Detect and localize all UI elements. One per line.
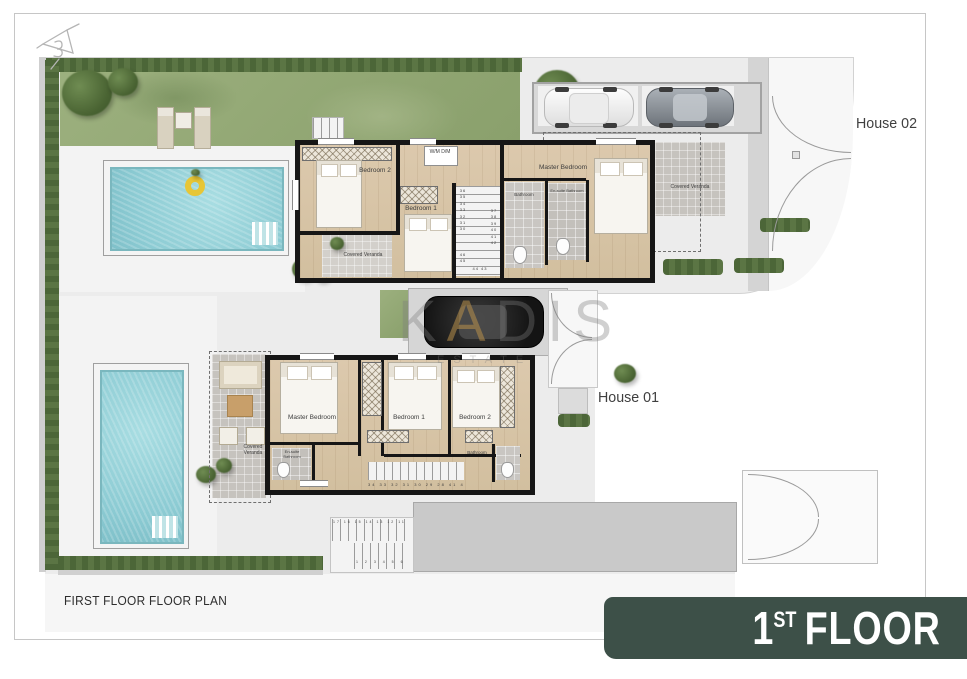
toilet bbox=[556, 238, 570, 255]
banner-suffix: ST bbox=[774, 607, 797, 633]
gate-post bbox=[792, 151, 800, 159]
boundary-wall-bottom bbox=[58, 570, 323, 575]
garden-steps bbox=[312, 117, 344, 139]
kadis-watermark-line2: ESTATE bbox=[437, 354, 597, 366]
hedge-left bbox=[45, 60, 59, 570]
window bbox=[318, 138, 354, 145]
window bbox=[300, 480, 328, 487]
bush-strip bbox=[734, 258, 784, 273]
stair-numbers: 46 45 bbox=[458, 252, 468, 265]
wall bbox=[270, 442, 360, 445]
master-label-house01: Master Bedroom bbox=[270, 414, 354, 422]
kadis-watermark: KADIS bbox=[398, 288, 618, 364]
window bbox=[410, 138, 436, 145]
stair-numbers: 34 33 32 31 30 29 28 41 40 39 38 bbox=[368, 482, 464, 488]
bed-bedroom1-house02 bbox=[404, 214, 452, 272]
hedge-bottom-left bbox=[58, 556, 323, 570]
stairs-house01 bbox=[368, 462, 464, 480]
closet bbox=[302, 147, 392, 161]
bed-master-house01 bbox=[280, 362, 338, 434]
outdoor-chair bbox=[219, 427, 238, 445]
pool-float-leaf bbox=[191, 169, 200, 176]
stair-numbers: 37 38 39 40 41 42 bbox=[489, 208, 499, 246]
sun-lounger bbox=[157, 107, 174, 149]
watermark-part: DIS bbox=[495, 289, 622, 354]
bedroom2-label-house02: Bedroom 2 bbox=[350, 167, 400, 175]
ensuite-label-house02: En-suite Bathroom bbox=[549, 188, 585, 193]
car-gray bbox=[646, 88, 734, 127]
watermark-part: K bbox=[398, 289, 447, 354]
wall bbox=[300, 231, 398, 235]
banner-word: FLOOR bbox=[805, 601, 941, 655]
bush-strip bbox=[558, 414, 590, 427]
outdoor-sofa bbox=[219, 361, 262, 389]
tree bbox=[108, 68, 138, 96]
floor-banner: 1STFLOOR bbox=[604, 597, 967, 659]
closet bbox=[367, 430, 409, 443]
coffee-table bbox=[227, 395, 253, 417]
house01-label: House 01 bbox=[598, 389, 665, 408]
parking-pad-bottom bbox=[413, 502, 737, 572]
watermark-part-gold: A bbox=[447, 289, 496, 354]
stair-numbers: 1 2 3 4 5 6 7 bbox=[356, 560, 408, 566]
outdoor-chair bbox=[246, 427, 265, 445]
pool-steps bbox=[252, 222, 278, 245]
bedroom1-label-house02: Bedroom 1 bbox=[396, 205, 446, 213]
house02-label: House 02 bbox=[856, 115, 923, 134]
plant bbox=[216, 458, 232, 473]
plan-caption: FIRST FLOOR FLOOR PLAN bbox=[64, 594, 311, 610]
bedroom1-label-house01: Bedroom 1 bbox=[380, 414, 438, 422]
master-label-house02: Master Bedroom bbox=[520, 164, 606, 172]
window bbox=[292, 180, 299, 210]
toilet bbox=[277, 462, 290, 478]
tree bbox=[62, 70, 112, 116]
car-white bbox=[544, 88, 634, 127]
toilet bbox=[513, 246, 527, 264]
bedroom2-label-house01: Bedroom 2 bbox=[446, 414, 504, 422]
architect-compass-logo bbox=[34, 20, 86, 72]
closet bbox=[400, 186, 438, 204]
wall bbox=[448, 360, 451, 456]
ensuite-label-house01: En-suite Bathroom bbox=[276, 449, 308, 459]
pool-float-ring bbox=[185, 176, 205, 196]
bathroom-label-house02: Bathroom bbox=[502, 192, 546, 198]
bush bbox=[614, 364, 636, 383]
stair-numbers: 36 35 34 33 32 31 30 bbox=[458, 188, 468, 233]
stair-numbers: 44 43 bbox=[468, 266, 492, 272]
bush-strip bbox=[663, 259, 723, 275]
bathroom-label-house01: Bathroom bbox=[447, 450, 507, 456]
laundry-label: W/M D/M bbox=[424, 149, 456, 156]
veranda-label-house01: Covered Veranda bbox=[235, 444, 271, 457]
gate-pillar bbox=[558, 388, 588, 414]
pool-steps bbox=[152, 516, 178, 538]
window bbox=[596, 138, 636, 145]
sun-lounger bbox=[194, 107, 211, 149]
window bbox=[300, 353, 334, 360]
wall bbox=[500, 145, 504, 278]
closet bbox=[362, 362, 382, 416]
closet bbox=[465, 430, 493, 443]
wall bbox=[312, 444, 315, 482]
veranda-bottom-label-house02: Covered Veranda bbox=[343, 252, 383, 258]
banner-number: 1 bbox=[753, 601, 774, 655]
side-table bbox=[175, 112, 192, 129]
stair-numbers: 17 16 15 14 13 12 11 10 9 8 bbox=[333, 520, 409, 526]
toilet bbox=[501, 462, 514, 478]
veranda-right-label-house02: Covered Veranda bbox=[657, 184, 723, 190]
wall bbox=[503, 178, 586, 181]
floor-plan-page: W/M D/M 36 35 34 33 32 31 30 37 38 39 40… bbox=[0, 0, 967, 679]
wall bbox=[586, 180, 589, 262]
plant bbox=[330, 237, 344, 250]
